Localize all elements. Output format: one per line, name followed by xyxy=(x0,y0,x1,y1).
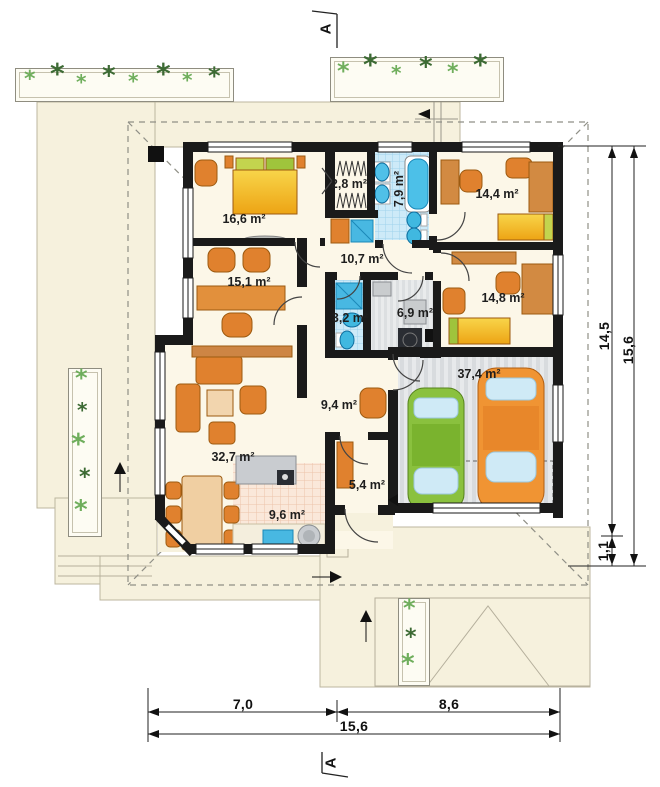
room-area-bathroom: 7,9 m² xyxy=(392,171,406,207)
room-area-child-room: 14,4 m² xyxy=(475,187,518,201)
room-area-wc: 3,2 m² xyxy=(332,311,368,325)
floor-plan: ******** ****** ***** *** 16,6 m² 2,8 m²… xyxy=(0,0,660,787)
plant-icon: * xyxy=(74,507,88,513)
room-area-bedroom-2: 14,8 m² xyxy=(481,291,524,305)
room-area-kitchen: 9,6 m² xyxy=(269,508,305,522)
dim-total-width: 15,6 xyxy=(340,718,368,734)
section-marker-bottom: A xyxy=(323,758,340,769)
dim-right-width: 8,6 xyxy=(439,696,459,712)
room-area-study: 15,1 m² xyxy=(227,275,270,289)
plant-icon: * xyxy=(79,475,91,481)
plant-icon: * xyxy=(24,77,36,83)
room-area-utility: 6,9 m² xyxy=(397,306,433,320)
dim-house-depth: 14,5 xyxy=(596,322,612,350)
plant-icon: * xyxy=(76,79,86,85)
room-area-wardrobe: 2,8 m² xyxy=(331,177,367,191)
plant-icon: * xyxy=(128,78,138,84)
plant-icon: * xyxy=(419,64,433,70)
room-area-bedroom: 16,6 m² xyxy=(222,212,265,226)
plant-icon: * xyxy=(363,62,378,68)
section-marker-top: A xyxy=(318,24,335,35)
plant-icon: * xyxy=(156,71,171,77)
plant-icon: * xyxy=(50,71,65,77)
planter: ******** xyxy=(15,68,234,102)
plant-icon: * xyxy=(447,70,459,76)
room-area-entry: 5,4 m² xyxy=(349,478,385,492)
planter: ***** xyxy=(68,368,102,537)
plant-icon: * xyxy=(182,77,192,83)
dim-total-depth: 15,6 xyxy=(620,336,636,364)
room-area-hall-lower: 9,4 m² xyxy=(321,398,357,412)
plant-icon: * xyxy=(473,62,488,68)
dim-left-width: 7,0 xyxy=(233,696,253,712)
plant-icon: * xyxy=(77,407,87,413)
planter: ****** xyxy=(330,57,504,102)
plant-icon: * xyxy=(337,68,350,74)
room-area-living-room: 32,7 m² xyxy=(211,450,254,464)
plant-icon: * xyxy=(102,73,116,79)
plant-icon: * xyxy=(71,441,86,447)
dim-eave-depth: 1,1 xyxy=(595,541,611,561)
plant-icon: * xyxy=(75,375,88,381)
plant-icon: * xyxy=(391,70,401,76)
plant-icon: * xyxy=(403,605,416,611)
planter: *** xyxy=(398,598,430,686)
plant-icon: * xyxy=(405,635,417,641)
room-area-hall-upper: 10,7 m² xyxy=(340,252,383,266)
room-area-garage: 37,4 m² xyxy=(457,367,500,381)
plant-icon: * xyxy=(208,73,221,79)
plant-icon: * xyxy=(401,661,415,667)
